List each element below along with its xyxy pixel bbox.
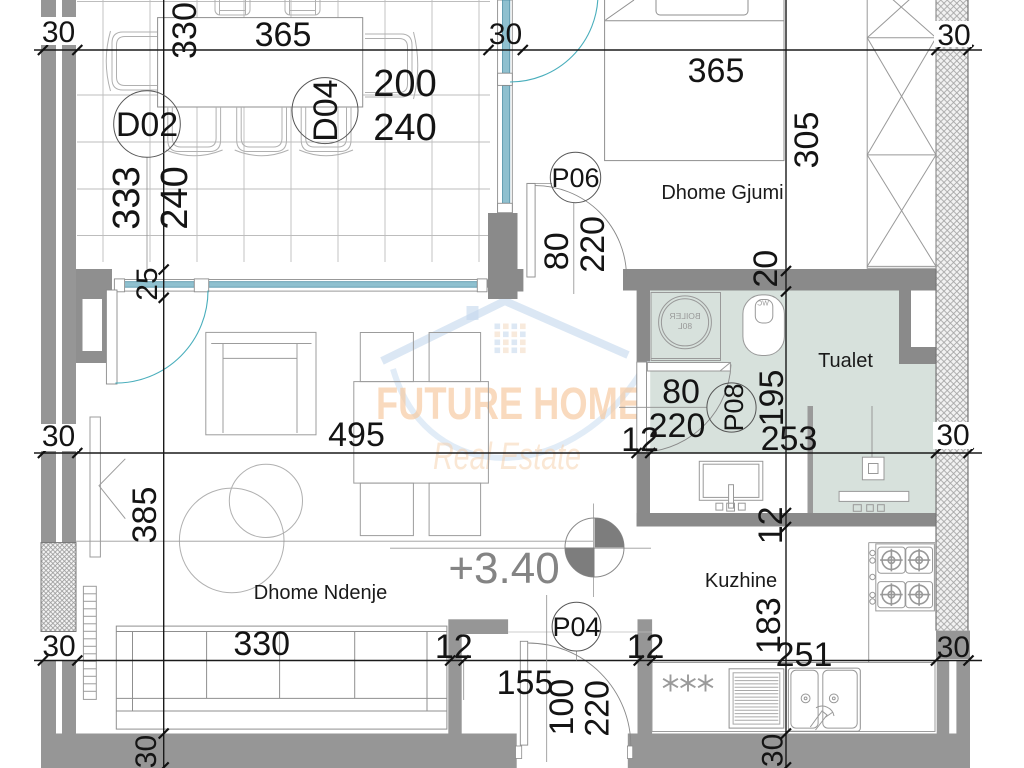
svg-text:253: 253 (761, 420, 818, 458)
svg-text:200: 200 (373, 63, 436, 105)
svg-text:12: 12 (435, 628, 473, 666)
svg-text:Kuzhine: Kuzhine (705, 570, 777, 592)
svg-text:30: 30 (42, 16, 75, 49)
svg-text:30: 30 (489, 18, 522, 51)
svg-text:240: 240 (154, 166, 196, 229)
svg-text:Tualet: Tualet (818, 350, 873, 372)
svg-text:305: 305 (788, 112, 826, 169)
svg-text:30: 30 (42, 420, 75, 453)
svg-text:D04: D04 (307, 79, 345, 141)
svg-text:P06: P06 (551, 163, 599, 193)
svg-text:30: 30 (757, 734, 790, 767)
svg-text:WC: WC (757, 301, 769, 308)
svg-text:220: 220 (574, 216, 612, 273)
svg-text:385: 385 (126, 487, 164, 544)
svg-text:20: 20 (747, 250, 785, 288)
svg-text:80L: 80L (678, 321, 692, 331)
svg-text:D02: D02 (116, 106, 178, 144)
svg-text:195: 195 (753, 370, 791, 427)
svg-text:12: 12 (621, 421, 659, 459)
svg-text:365: 365 (255, 16, 312, 54)
svg-text:80: 80 (662, 373, 700, 411)
svg-text:30: 30 (937, 631, 970, 664)
svg-text:365: 365 (688, 52, 745, 90)
svg-text:12: 12 (752, 506, 790, 544)
svg-text:P04: P04 (552, 612, 600, 642)
svg-text:BOILER: BOILER (669, 311, 700, 321)
svg-text:30: 30 (936, 419, 969, 452)
svg-text:495: 495 (328, 416, 385, 454)
svg-text:30: 30 (42, 630, 75, 663)
svg-text:80: 80 (538, 232, 576, 270)
svg-text:240: 240 (373, 107, 436, 149)
svg-text:251: 251 (776, 636, 833, 674)
svg-text:Real Estate: Real Estate (433, 436, 581, 478)
svg-text:FUTURE HOME: FUTURE HOME (376, 378, 642, 429)
svg-text:220: 220 (579, 680, 617, 737)
svg-text:330: 330 (166, 2, 204, 59)
svg-text:330: 330 (233, 625, 290, 663)
svg-text:Dhome Ndenje: Dhome Ndenje (254, 582, 387, 604)
svg-text:100: 100 (543, 679, 581, 736)
svg-text:P08: P08 (719, 383, 749, 431)
svg-text:Dhome Gjumi: Dhome Gjumi (661, 182, 783, 204)
svg-text:+3.40: +3.40 (448, 544, 559, 593)
svg-text:30: 30 (937, 19, 970, 52)
svg-text:30: 30 (130, 735, 163, 768)
svg-text:25: 25 (131, 267, 164, 300)
svg-text:333: 333 (106, 166, 148, 229)
svg-text:12: 12 (627, 628, 665, 666)
